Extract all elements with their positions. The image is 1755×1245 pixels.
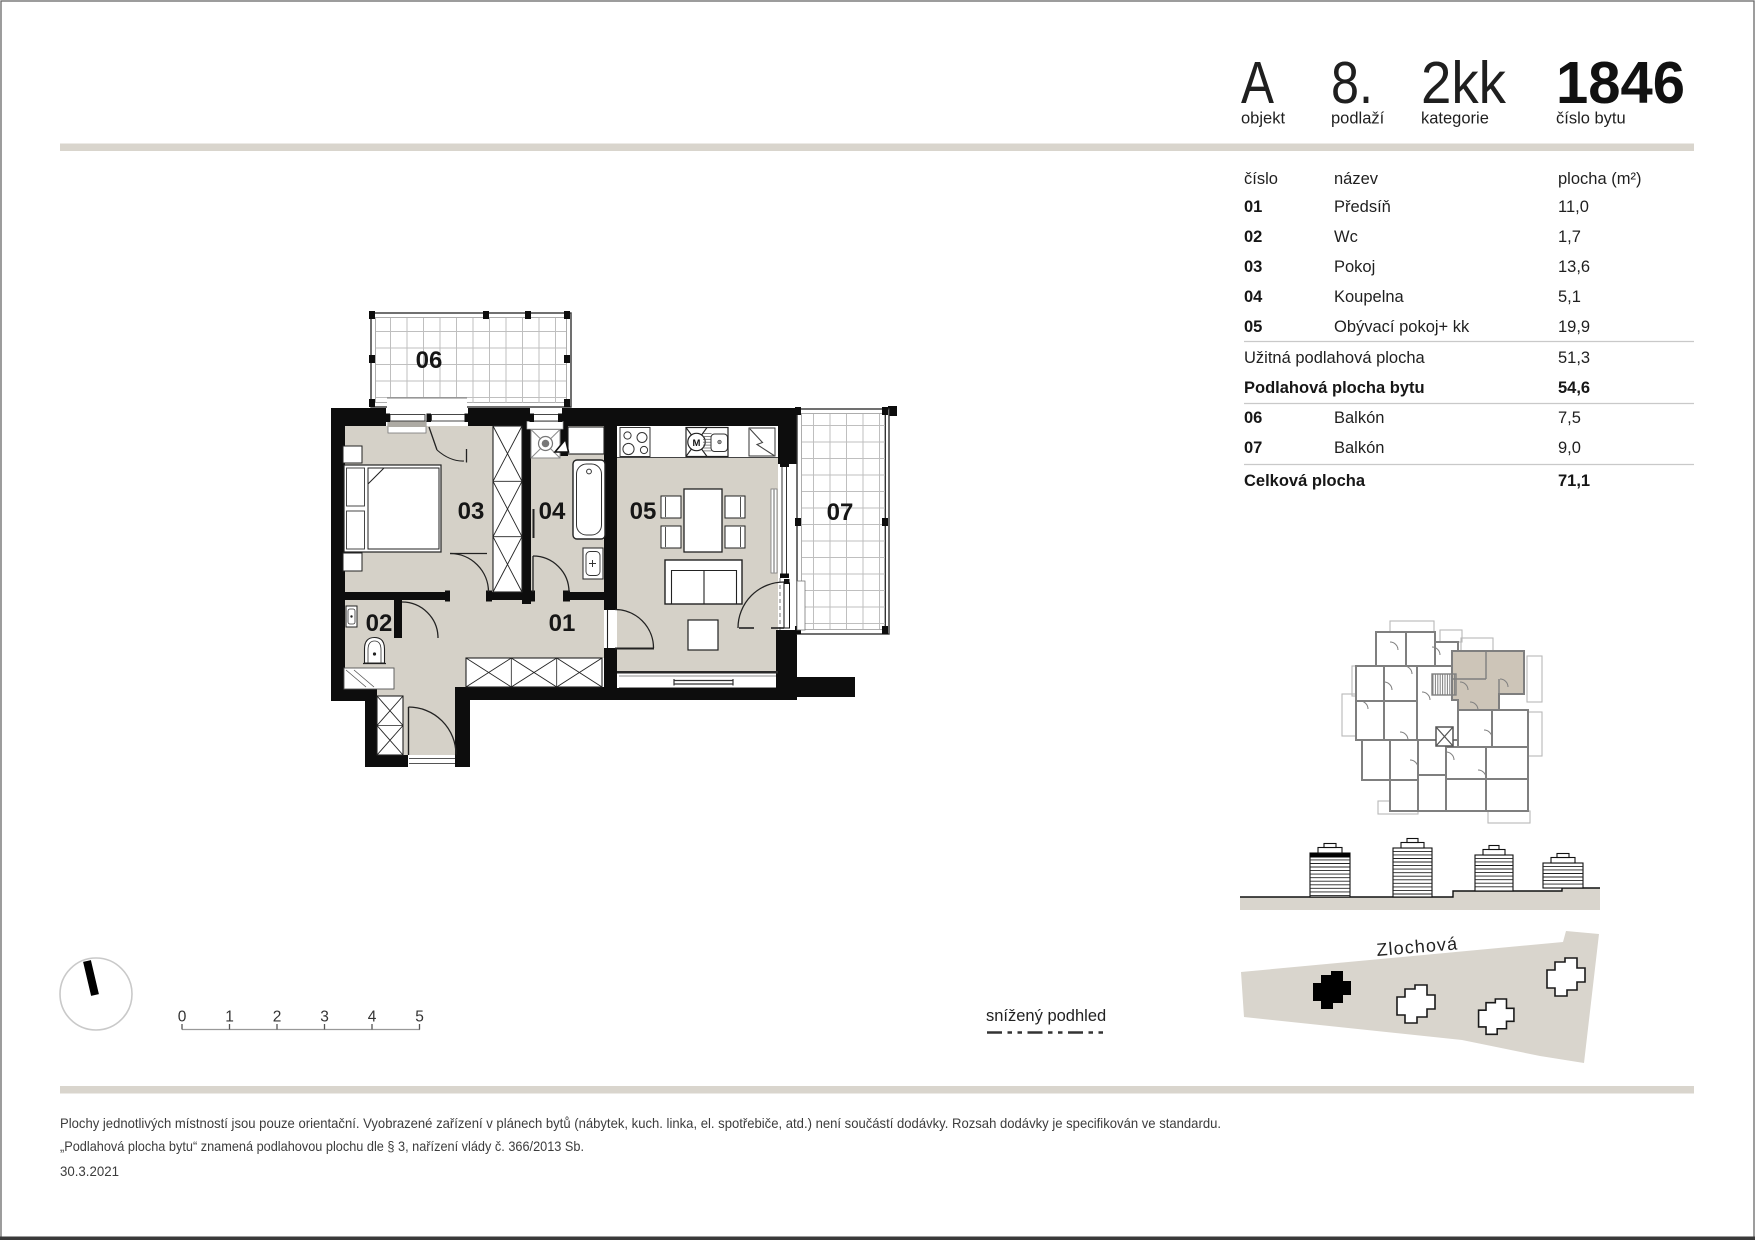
svg-text:05: 05	[630, 498, 657, 525]
svg-text:02: 02	[366, 610, 393, 637]
svg-text:Koupelna: Koupelna	[1334, 288, 1405, 306]
svg-text:Pokoj: Pokoj	[1334, 258, 1375, 276]
svg-text:19,9: 19,9	[1558, 318, 1590, 336]
svg-text:Obývací pokoj+ kk: Obývací pokoj+ kk	[1334, 318, 1470, 336]
svg-text:07: 07	[1244, 439, 1262, 457]
svg-text:07: 07	[827, 499, 854, 526]
svg-text:03: 03	[458, 498, 485, 525]
svg-text:06: 06	[1244, 409, 1262, 427]
svg-text:1: 1	[225, 1009, 234, 1026]
svg-text:„Podlahová plocha bytu“ znamen: „Podlahová plocha bytu“ znamená podlahov…	[60, 1138, 584, 1154]
svg-text:plocha (m²): plocha (m²)	[1558, 170, 1641, 188]
svg-text:2: 2	[273, 1009, 282, 1026]
svg-text:1,7: 1,7	[1558, 228, 1581, 246]
svg-text:54,6: 54,6	[1558, 379, 1590, 397]
svg-text:7,5: 7,5	[1558, 409, 1581, 427]
svg-text:9,0: 9,0	[1558, 439, 1581, 457]
svg-text:51,3: 51,3	[1558, 349, 1590, 367]
svg-text:04: 04	[539, 498, 566, 525]
svg-text:11,0: 11,0	[1558, 198, 1589, 216]
svg-text:03: 03	[1244, 258, 1262, 276]
svg-text:5,1: 5,1	[1558, 288, 1581, 306]
svg-text:2kk: 2kk	[1421, 50, 1506, 116]
svg-text:číslo: číslo	[1244, 170, 1278, 188]
svg-text:04: 04	[1244, 288, 1263, 306]
svg-text:Plochy jednotlivých místností: Plochy jednotlivých místností jsou pouze…	[60, 1115, 1221, 1131]
svg-text:3: 3	[320, 1009, 329, 1026]
svg-text:Podlahová plocha bytu: Podlahová plocha bytu	[1244, 379, 1425, 397]
svg-text:objekt: objekt	[1241, 110, 1285, 128]
svg-text:4: 4	[368, 1009, 377, 1026]
svg-text:Wc: Wc	[1334, 228, 1358, 246]
svg-text:13,6: 13,6	[1558, 258, 1590, 276]
svg-text:Předsíň: Předsíň	[1334, 198, 1391, 216]
svg-text:Balkón: Balkón	[1334, 409, 1384, 427]
svg-text:podlaží: podlaží	[1331, 110, 1385, 128]
svg-text:01: 01	[549, 610, 576, 637]
svg-text:0: 0	[178, 1009, 187, 1026]
svg-text:1846: 1846	[1556, 50, 1685, 116]
svg-text:Balkón: Balkón	[1334, 439, 1384, 457]
svg-text:Celková plocha: Celková plocha	[1244, 472, 1366, 490]
svg-text:název: název	[1334, 170, 1379, 188]
svg-text:5: 5	[415, 1009, 424, 1026]
svg-text:snížený podhled: snížený podhled	[986, 1007, 1106, 1025]
svg-text:30.3.2021: 30.3.2021	[60, 1163, 119, 1179]
svg-text:číslo bytu: číslo bytu	[1556, 110, 1626, 128]
svg-text:M: M	[693, 438, 701, 449]
svg-text:06: 06	[416, 347, 443, 374]
svg-text:01: 01	[1244, 198, 1262, 216]
svg-text:kategorie: kategorie	[1421, 110, 1489, 128]
svg-text:A: A	[1241, 50, 1275, 116]
svg-text:Užitná podlahová plocha: Užitná podlahová plocha	[1244, 349, 1426, 367]
svg-text:02: 02	[1244, 228, 1262, 246]
svg-text:8.: 8.	[1331, 50, 1373, 116]
svg-text:05: 05	[1244, 318, 1262, 336]
svg-text:71,1: 71,1	[1558, 472, 1590, 490]
